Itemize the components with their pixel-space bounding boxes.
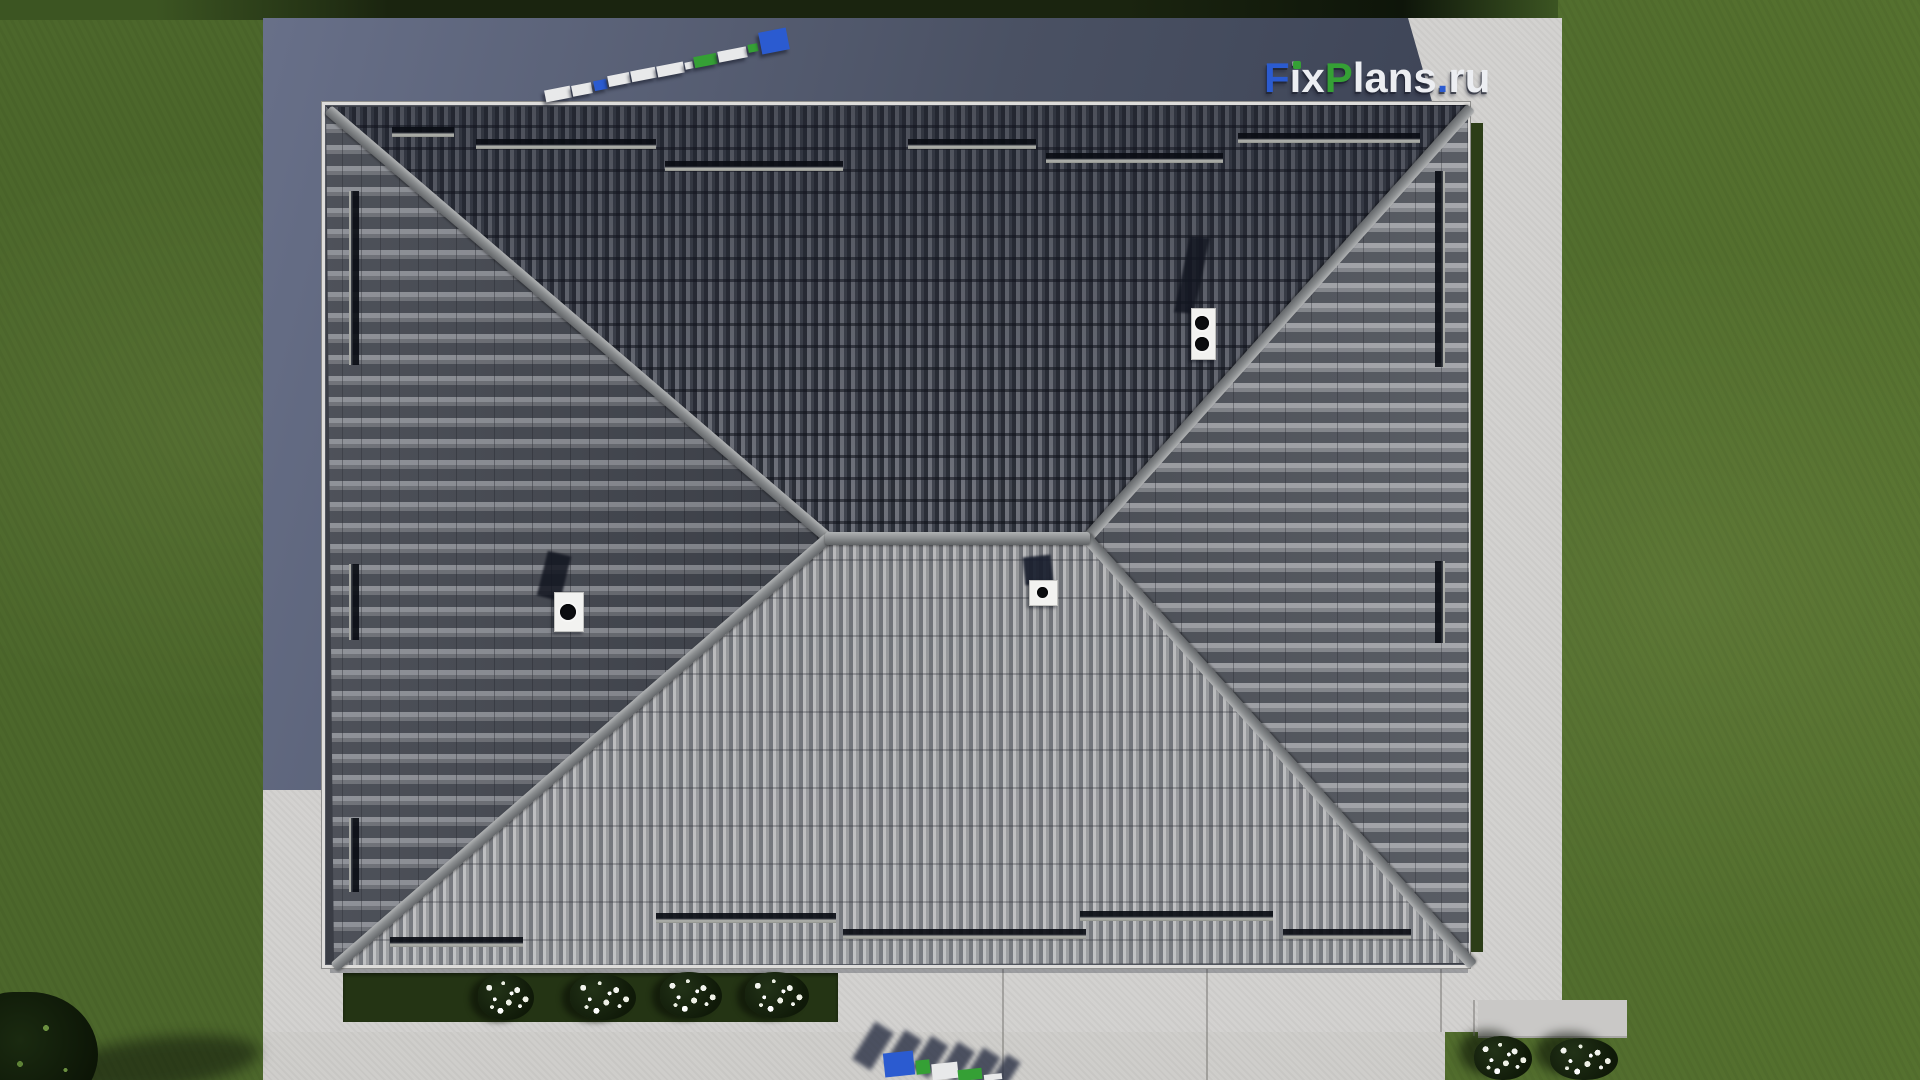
aerial-roof-render: FixPlans.ru (0, 0, 1920, 1080)
watermark-letter: r (1448, 54, 1464, 101)
flower-bush (1550, 1038, 1618, 1080)
logo-block (883, 1050, 915, 1077)
flower-bush (745, 972, 809, 1018)
snow-guard-bar (908, 139, 1036, 149)
watermark-letter: u (1465, 54, 1491, 101)
snow-guard-bar (390, 937, 523, 947)
concrete-joint (1473, 1000, 1475, 1036)
logo-block (984, 1073, 1003, 1080)
logo-block (957, 1068, 982, 1080)
concrete-joint (1206, 968, 1208, 1080)
ridge-cap (825, 532, 1090, 545)
i-dot-icon (1293, 61, 1301, 69)
chimney-flue (1195, 337, 1209, 351)
snow-guard-bar (1435, 171, 1445, 367)
concrete-joint (1440, 968, 1442, 1032)
watermark-letter: x (1301, 54, 1324, 101)
watermark-letter: . (1437, 54, 1449, 101)
flower-bush (660, 972, 722, 1018)
hip-roof (322, 102, 1470, 968)
snow-guard-bar (349, 191, 359, 365)
snow-guard-bar (665, 161, 843, 171)
watermark-letter: n (1388, 54, 1414, 101)
logo-block (931, 1062, 959, 1080)
snow-guard-bar (476, 139, 656, 149)
snow-guard-bar (1435, 561, 1445, 643)
snow-guard-bar (392, 127, 454, 137)
flower-bush (478, 974, 534, 1020)
fixplans-watermark: FixPlans.ru (1264, 54, 1490, 102)
watermark-letter: l (1353, 54, 1365, 101)
concrete-step-pad (1478, 1000, 1627, 1038)
watermark-letter: P (1325, 54, 1353, 101)
snow-guard-bar (349, 818, 359, 892)
snow-guard-bar (1283, 929, 1411, 939)
logo-block (915, 1059, 930, 1074)
snow-guard-bar (656, 913, 836, 923)
watermark-letter: a (1364, 54, 1387, 101)
flower-bush (1474, 1036, 1532, 1080)
snow-guard-bar (349, 564, 359, 640)
snow-guard-bar (1080, 911, 1273, 921)
snow-guard-bar (843, 929, 1086, 939)
hedge-strip (0, 0, 1558, 20)
watermark-letter: F (1264, 54, 1290, 101)
watermark-letter: s (1413, 54, 1436, 101)
logo-block (684, 61, 693, 69)
flower-bush (570, 974, 636, 1020)
chimney-flue (1195, 316, 1209, 330)
vent-flue (560, 604, 576, 620)
planting-strip (1471, 123, 1483, 952)
vent-flue (1037, 587, 1048, 598)
snow-guard-bar (1238, 133, 1420, 143)
snow-guard-bar (1046, 153, 1223, 163)
